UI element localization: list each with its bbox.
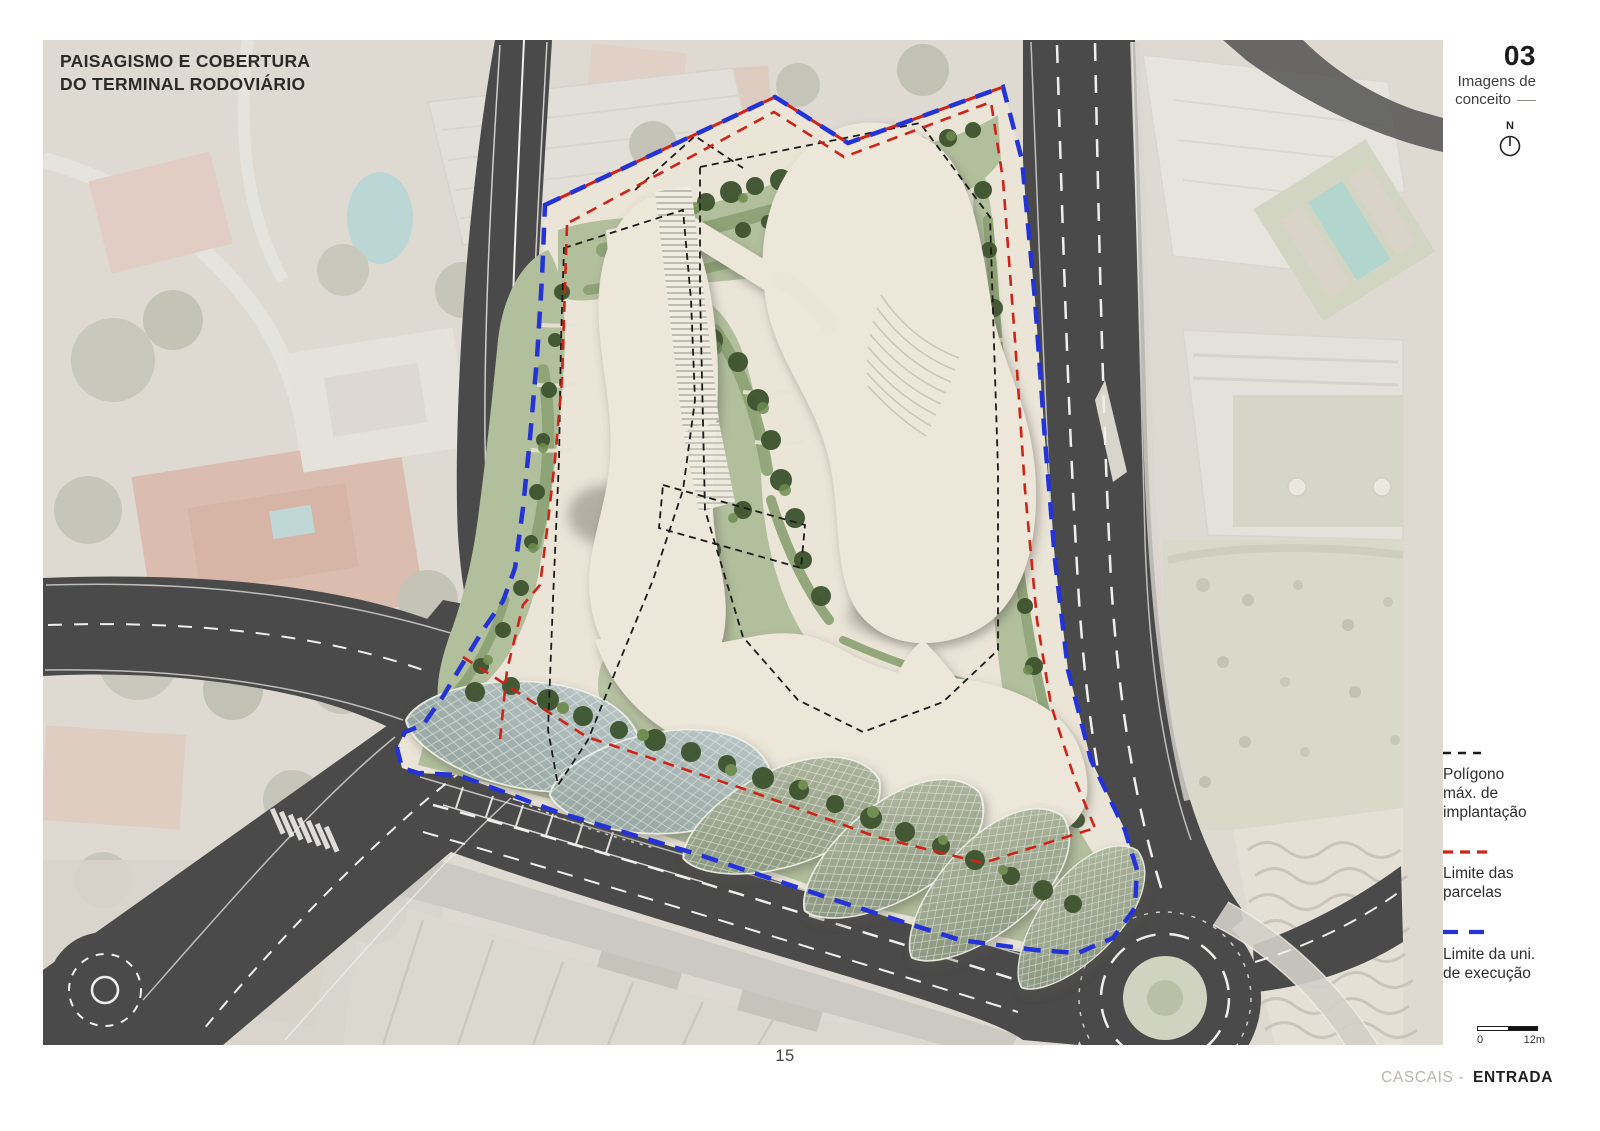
scale-bar-black-half xyxy=(1508,1027,1538,1030)
footer-location: CASCAIS - ENTRADA xyxy=(1280,1069,1553,1087)
north-arrow: N xyxy=(1496,121,1524,163)
north-arrow-icon xyxy=(1497,132,1523,158)
sheet-number: 03 xyxy=(1400,42,1536,70)
scale-bar-block: 0 12m xyxy=(1477,1026,1545,1046)
black-dashed-line-icon xyxy=(1443,750,1487,756)
sheet-section-label: Imagens de conceito xyxy=(1400,73,1536,110)
legend-label: Limite da uni. de execução xyxy=(1443,945,1563,983)
scale-zero-label: 0 xyxy=(1477,1034,1483,1046)
footer-location-prefix: CASCAIS - xyxy=(1381,1069,1464,1086)
presentation-sheet: PAISAGISMO E COBERTURA DO TERMINAL RODOV… xyxy=(0,0,1600,1131)
legend-item-parcels: Limite das parcelas xyxy=(1443,849,1563,902)
scale-bar xyxy=(1477,1026,1538,1031)
legend-label: Limite das parcelas xyxy=(1443,864,1563,902)
sheet-title-line1: PAISAGISMO E COBERTURA xyxy=(60,50,310,73)
legend-item-implantation: Polígono máx. de implantação xyxy=(1443,750,1563,823)
sheet-title: PAISAGISMO E COBERTURA DO TERMINAL RODOV… xyxy=(60,50,310,96)
north-label: N xyxy=(1496,121,1524,132)
sheet-number-block: 03 Imagens de conceito xyxy=(1400,42,1536,110)
label-underscore-line xyxy=(1517,100,1536,101)
blue-dashed-line-icon xyxy=(1443,928,1487,936)
legend: Polígono máx. de implantação Limite das … xyxy=(1443,750,1563,1010)
site-plan-canvas xyxy=(43,40,1443,1045)
scale-bar-white-half xyxy=(1478,1027,1508,1030)
red-dashed-line-icon xyxy=(1443,849,1487,855)
page-number: 15 xyxy=(755,1047,815,1066)
scale-max-label: 12m xyxy=(1524,1034,1545,1046)
site-plan-map xyxy=(43,40,1443,1045)
legend-label: Polígono máx. de implantação xyxy=(1443,765,1563,823)
sheet-title-line2: DO TERMINAL RODOVIÁRIO xyxy=(60,73,310,96)
legend-item-execution-unit: Limite da uni. de execução xyxy=(1443,928,1563,983)
footer-location-emphasis: ENTRADA xyxy=(1473,1069,1553,1086)
